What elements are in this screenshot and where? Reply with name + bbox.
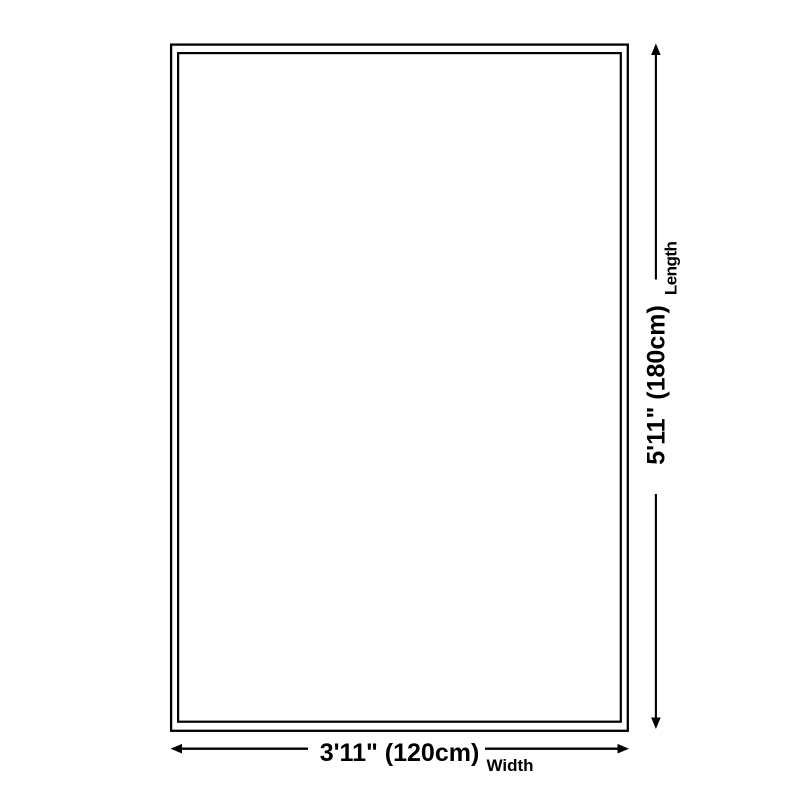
svg-text:3'11" (120cm): 3'11" (120cm) (320, 739, 480, 767)
svg-text:5'11" (180cm): 5'11" (180cm) (642, 305, 670, 465)
svg-text:Length: Length (662, 241, 681, 295)
svg-text:Width: Width (487, 756, 534, 775)
